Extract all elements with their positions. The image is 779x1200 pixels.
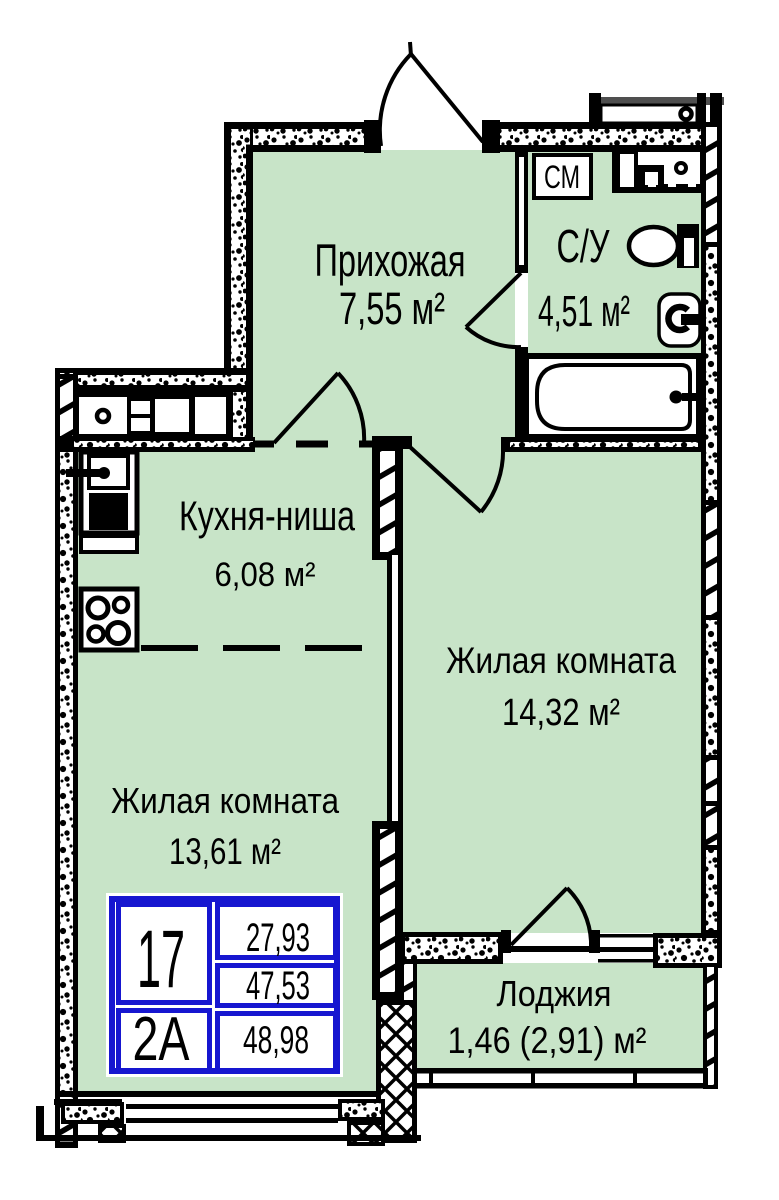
svg-text:СМ: СМ bbox=[544, 159, 580, 195]
svg-text:13,61 м²: 13,61 м² bbox=[169, 831, 281, 872]
svg-text:Прихожая: Прихожая bbox=[315, 235, 466, 286]
svg-text:17: 17 bbox=[137, 914, 185, 1005]
svg-text:14,32 м²: 14,32 м² bbox=[502, 692, 620, 734]
svg-text:48,98: 48,98 bbox=[243, 1019, 309, 1062]
svg-text:Лоджия: Лоджия bbox=[497, 973, 612, 1014]
svg-text:Кухня-ниша: Кухня-ниша bbox=[179, 492, 355, 539]
svg-text:4,51 м²: 4,51 м² bbox=[538, 287, 630, 336]
svg-text:7,55 м²: 7,55 м² bbox=[339, 283, 445, 334]
svg-text:С/У: С/У bbox=[557, 220, 611, 272]
svg-text:1,46 (2,91) м²: 1,46 (2,91) м² bbox=[448, 1020, 647, 1061]
svg-text:Жилая комната: Жилая комната bbox=[446, 640, 676, 681]
svg-text:2А: 2А bbox=[133, 1005, 190, 1074]
svg-text:6,08 м²: 6,08 м² bbox=[215, 556, 316, 594]
svg-text:Жилая комната: Жилая комната bbox=[111, 780, 340, 821]
svg-text:27,93: 27,93 bbox=[246, 916, 310, 960]
svg-text:47,53: 47,53 bbox=[246, 964, 310, 1008]
